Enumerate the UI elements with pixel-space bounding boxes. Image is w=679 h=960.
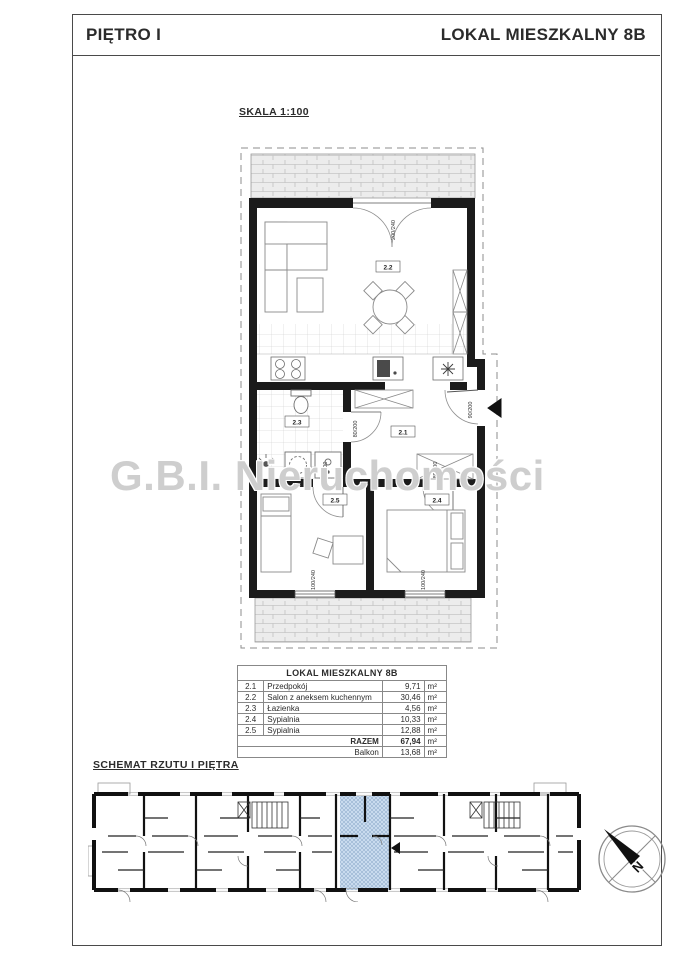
table-balcony-row: Balkon13,68m² (238, 747, 447, 758)
table-row: 2.2Salon z aneksem kuchennym30,46m² (238, 692, 447, 703)
compass: N (593, 820, 671, 898)
floor-title: PIĘTRO I (86, 25, 161, 45)
area-table: LOKAL MIESZKALNY 8B 2.1Przedpokój9,71m² … (237, 665, 447, 758)
table-total-row: RAZEM67,94m² (238, 736, 447, 747)
dim-bedroom-right-door: 80/200 (433, 462, 439, 479)
unit-title: LOKAL MIESZKALNY 8B (441, 25, 646, 45)
room-label-hall: 2.1 (398, 430, 407, 437)
kitchen-floor-tiles (257, 324, 467, 354)
dim-bath-door: 80/200 (353, 421, 359, 438)
bed-double (387, 510, 465, 572)
dim-balcony-door: 200/240 (391, 220, 397, 240)
balcony-top (251, 154, 475, 198)
room-label-bedroom-left: 2.5 (330, 498, 339, 505)
kitchen-hob (271, 357, 305, 380)
balcony-bottom (255, 598, 471, 642)
scale-label: SKALA 1:100 (239, 106, 309, 118)
dim-window-right: 100/240 (421, 570, 427, 590)
fridge (433, 357, 463, 380)
table-row: 2.1Przedpokój9,71m² (238, 681, 447, 692)
entrance-arrow-icon (488, 399, 501, 417)
room-label-living: 2.2 (383, 265, 392, 272)
staircase-left (238, 802, 288, 828)
table-row: 2.5Sypialnia12,88m² (238, 725, 447, 736)
room-label-bedroom-right: 2.4 (432, 498, 441, 505)
floor-plan: 2.2 2.3 2.1 2.5 2.4 200/240 90/200 80/20… (235, 142, 503, 654)
table-row: 2.4Sypialnia10,33m² (238, 714, 447, 725)
kitchen-sink (373, 357, 403, 380)
bed-single (261, 494, 291, 572)
schematic-door-arcs (118, 836, 550, 902)
dim-entrance-door: 90/200 (468, 402, 474, 419)
wardrobe-hall-top (355, 390, 413, 408)
coffee-table (297, 278, 323, 312)
wardrobe-hall-bottom (417, 454, 473, 479)
page-header: PIĘTRO I LOKAL MIESZKALNY 8B (72, 14, 660, 56)
schematic-room-walls (102, 818, 573, 870)
window-bedroom-right (405, 591, 445, 597)
schematic-title: SCHEMAT RZUTU I PIĘTRA (93, 759, 239, 771)
building-schematic (88, 778, 585, 902)
dim-bedroom-left-door: 80/200 (323, 462, 329, 479)
schematic-balconies (88, 783, 566, 876)
desk-and-chair (313, 536, 363, 564)
table-row: 2.3Łazienka4,56m² (238, 703, 447, 714)
window-bedroom-left (295, 591, 335, 597)
room-label-bath: 2.3 (292, 420, 301, 427)
dim-window-left: 100/240 (311, 570, 317, 590)
washing-machine (285, 452, 311, 478)
area-table-title: LOKAL MIESZKALNY 8B (238, 666, 447, 681)
